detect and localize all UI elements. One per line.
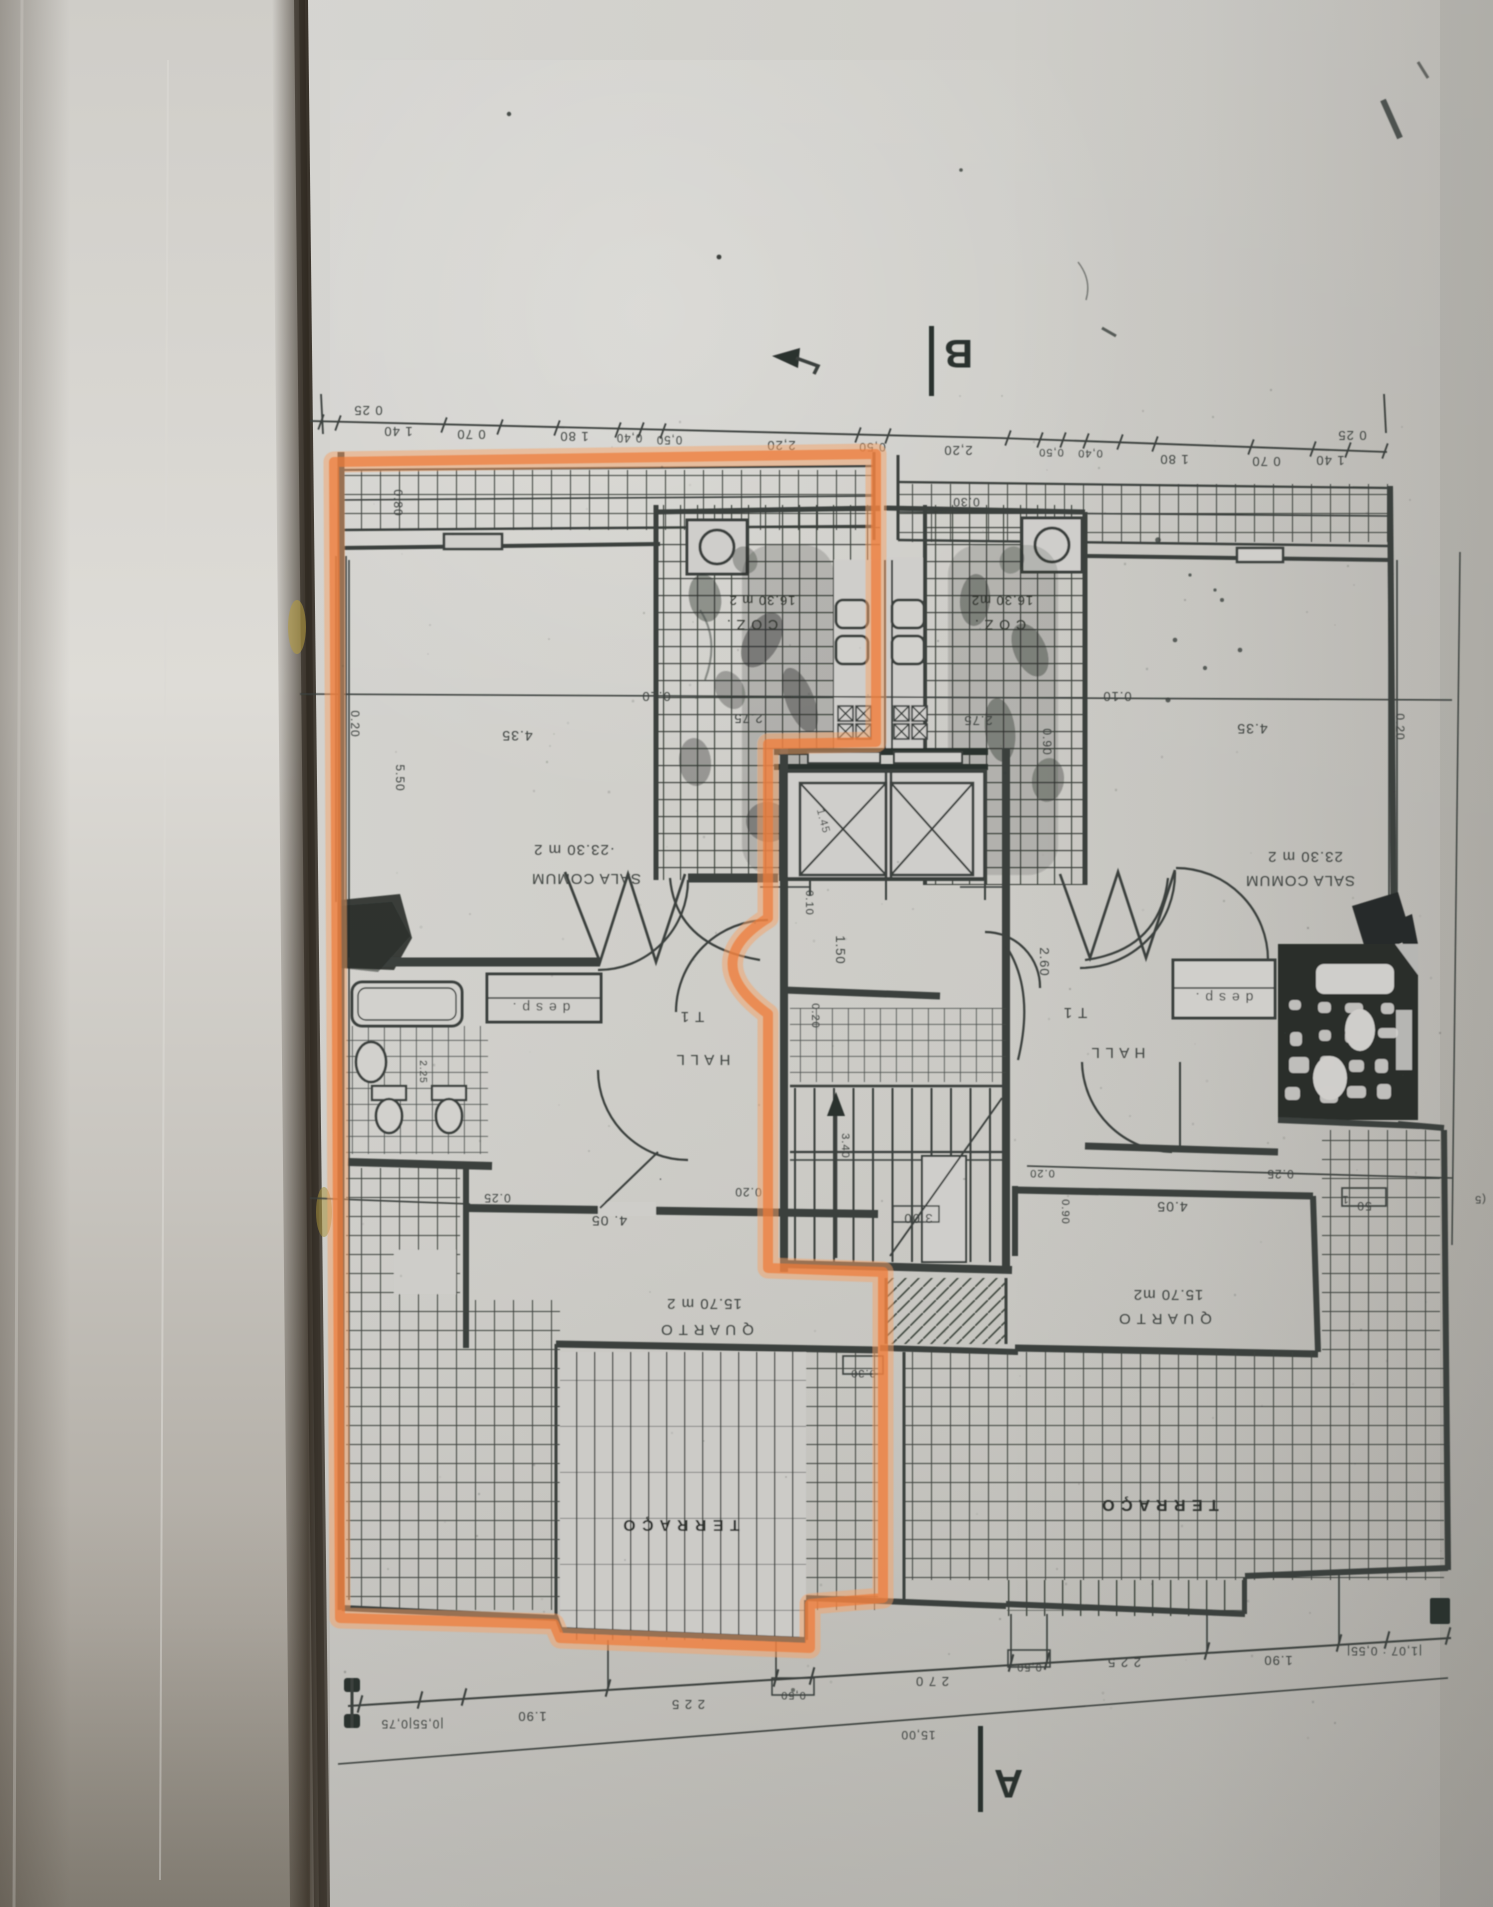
svg-text:2 2 5: 2 2 5 xyxy=(1107,1655,1141,1670)
svg-text:0.10: 0.10 xyxy=(641,689,670,704)
svg-text:SALA COMUM: SALA COMUM xyxy=(1245,872,1355,889)
svg-text:|1,07 : 0,55|: |1,07 : 0,55| xyxy=(1346,1644,1422,1658)
svg-text:0,50: 0,50 xyxy=(656,433,682,445)
svg-text:23.30 m 2: 23.30 m 2 xyxy=(1267,848,1343,865)
svg-text:1 40: 1 40 xyxy=(383,424,412,439)
svg-text:5.50: 5.50 xyxy=(393,764,407,791)
svg-text:0 25: 0 25 xyxy=(353,403,382,418)
svg-text:(5: (5 xyxy=(1474,1193,1486,1205)
svg-text:|0,55|0,75: |0,55|0,75 xyxy=(381,1717,444,1731)
svg-text:0,40: 0,40 xyxy=(1077,447,1102,459)
svg-text:Q U A R T O: Q U A R T O xyxy=(1118,1310,1212,1327)
svg-text:4. 05: 4. 05 xyxy=(591,1213,627,1229)
svg-text:d e s p .: d e s p . xyxy=(1195,990,1254,1006)
svg-text:16.30 m2: 16.30 m2 xyxy=(971,593,1033,608)
svg-text:0.20: 0.20 xyxy=(348,710,362,737)
svg-text:16.30 m 2: 16.30 m 2 xyxy=(729,593,796,608)
svg-text:2.60: 2.60 xyxy=(1037,947,1052,976)
svg-text:0.80: 0.80 xyxy=(391,489,405,516)
svg-text:T 1: T 1 xyxy=(1063,1004,1087,1021)
svg-text:1 80: 1 80 xyxy=(1159,452,1188,467)
svg-text:T E R R A Ç O: T E R R A Ç O xyxy=(1101,1496,1219,1513)
svg-text:H A L L: H A L L xyxy=(676,1051,731,1068)
svg-text:A: A xyxy=(993,1761,1023,1805)
svg-text:3 00: 3 00 xyxy=(903,1211,932,1226)
svg-text:0.10: 0.10 xyxy=(803,890,815,915)
svg-text:2.75: 2.75 xyxy=(963,713,992,728)
svg-text:0,50: 0,50 xyxy=(1016,1661,1041,1673)
svg-text:B: B xyxy=(943,331,973,375)
svg-text:0,40: 0,40 xyxy=(616,431,642,443)
svg-text:Q U A R T O: Q U A R T O xyxy=(660,1321,754,1338)
svg-text:0.25: 0.25 xyxy=(483,1191,510,1205)
svg-text:H A L L: H A L L xyxy=(1091,1044,1146,1061)
svg-text:2.75: 2.75 xyxy=(733,711,762,726)
svg-text:T E R R A Ç O: T E R R A Ç O xyxy=(622,1516,740,1533)
svg-text:4.35: 4.35 xyxy=(501,728,532,744)
svg-text:2,20: 2,20 xyxy=(943,443,972,458)
svg-text:0.25: 0.25 xyxy=(1266,1167,1293,1181)
svg-text:1 40: 1 40 xyxy=(1315,453,1344,468)
svg-text:C O Z .: C O Z . xyxy=(974,617,1026,633)
svg-text:·23.30 m 2: ·23.30 m 2 xyxy=(533,841,615,858)
svg-text:3.40: 3.40 xyxy=(839,1133,851,1158)
svg-text:15.70 m 2: 15.70 m 2 xyxy=(666,1295,742,1312)
svg-text:0 25: 0 25 xyxy=(1337,428,1366,443)
svg-text:0.20: 0.20 xyxy=(1393,713,1407,740)
svg-text:15.70 m2: 15.70 m2 xyxy=(1133,1286,1204,1303)
svg-text:0.90: 0.90 xyxy=(1040,728,1054,755)
svg-text:d e s p .: d e s p . xyxy=(512,1000,571,1016)
svg-text:2 2 5: 2 2 5 xyxy=(671,1697,705,1712)
svg-text:·: · xyxy=(658,1173,663,1187)
svg-text:15,00: 15,00 xyxy=(900,1728,935,1742)
svg-text:0 70: 0 70 xyxy=(456,427,485,442)
svg-text:0.20: 0.20 xyxy=(1029,1167,1054,1179)
svg-text:1: 1 xyxy=(1341,1193,1348,1205)
svg-text:0.90: 0.90 xyxy=(1059,1199,1071,1224)
svg-text:2 7 0: 2 7 0 xyxy=(915,1674,949,1689)
svg-text:0,50: 0,50 xyxy=(1038,446,1063,458)
svg-text:1 80: 1 80 xyxy=(559,429,588,444)
svg-text:4.35: 4.35 xyxy=(1236,721,1267,737)
svg-text:1.90: 1.90 xyxy=(1263,1653,1292,1668)
svg-text:C O Z .: C O Z . xyxy=(726,617,778,633)
svg-text:0 70: 0 70 xyxy=(1251,454,1280,469)
svg-text:2.25: 2.25 xyxy=(417,1060,428,1083)
svg-text:4.05: 4.05 xyxy=(1156,1199,1187,1215)
svg-text:1.90: 1.90 xyxy=(517,1709,546,1724)
svg-text:0.10: 0.10 xyxy=(1102,689,1131,704)
